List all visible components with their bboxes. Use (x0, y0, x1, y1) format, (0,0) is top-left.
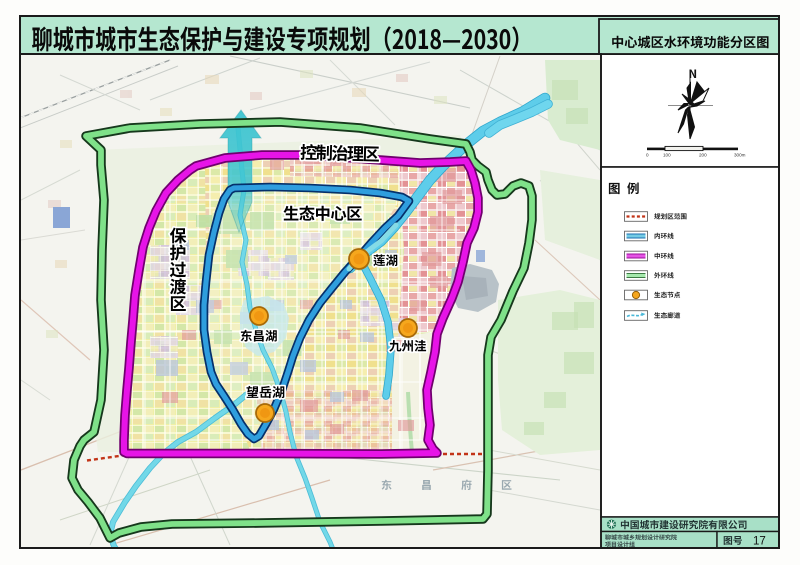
svg-text:300m: 300m (734, 153, 746, 158)
svg-text:17: 17 (753, 536, 766, 548)
svg-text:200: 200 (699, 153, 707, 158)
svg-text:100: 100 (663, 153, 671, 158)
svg-text:0: 0 (646, 153, 649, 158)
